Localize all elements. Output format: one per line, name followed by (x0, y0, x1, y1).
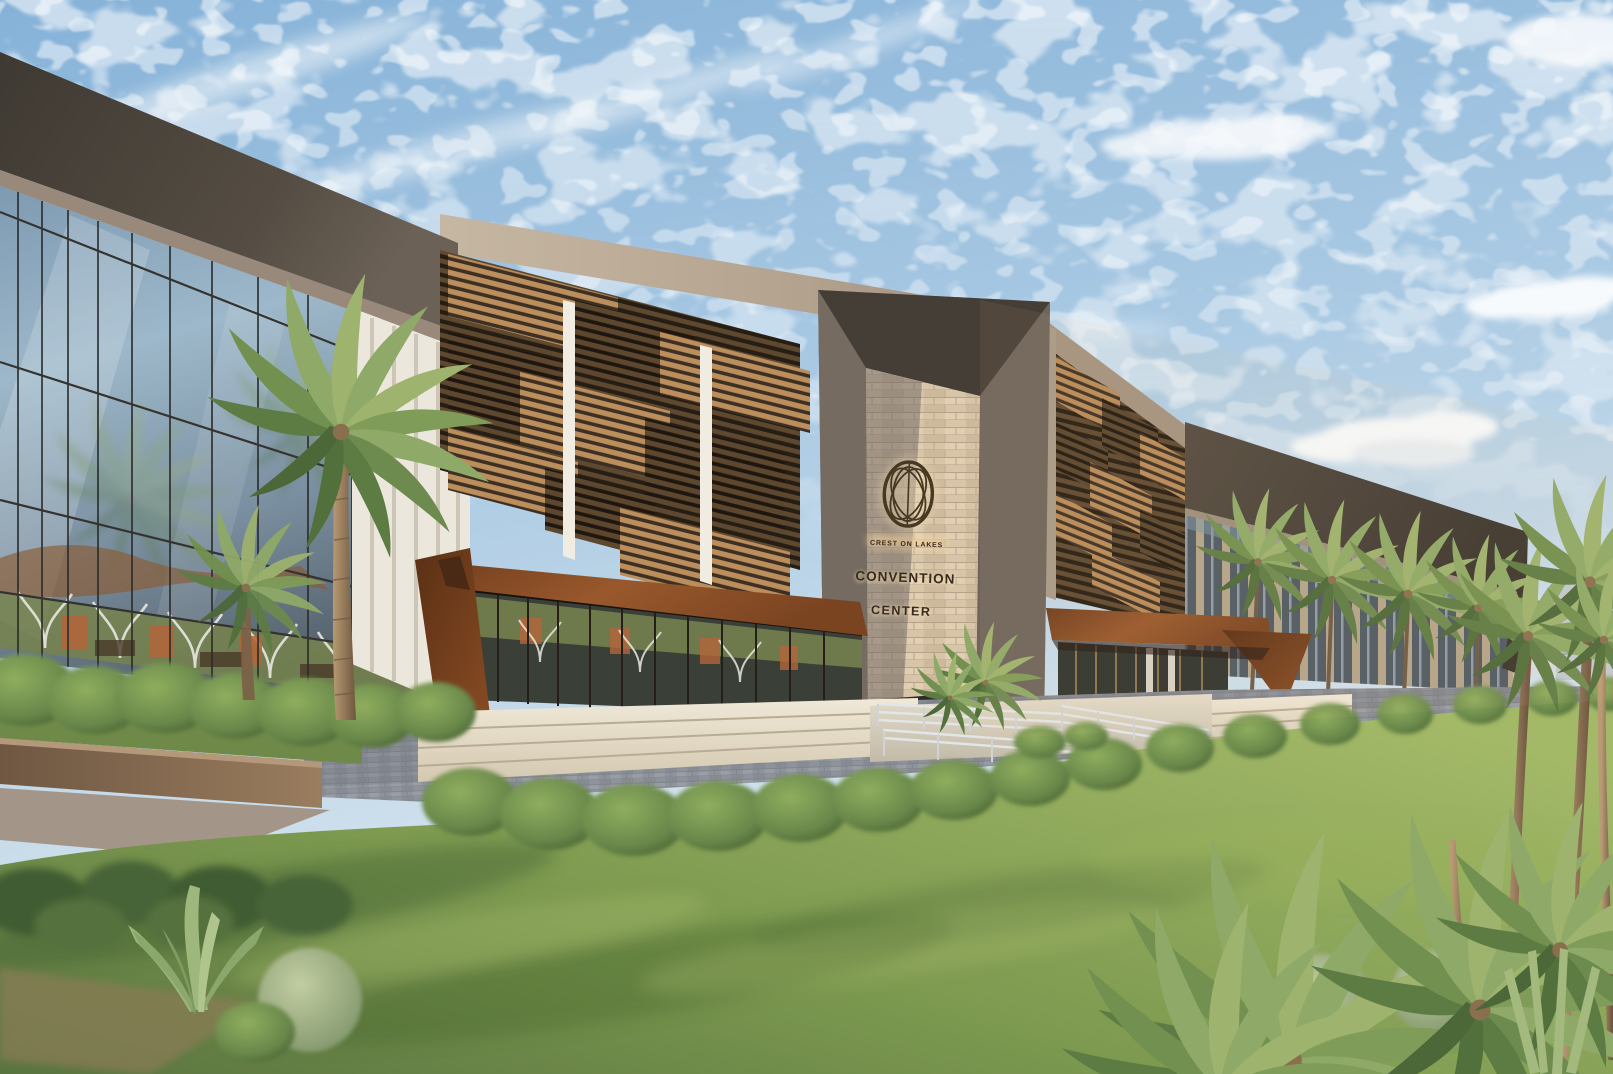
scene: CREST ON LAKES CONVENTION CONVENTION CEN… (0, 0, 1613, 1074)
rendering-canvas: CREST ON LAKES CONVENTION CONVENTION CEN… (0, 0, 1613, 1074)
title-line2: CENTER (871, 603, 932, 619)
small-bush (215, 1002, 295, 1062)
